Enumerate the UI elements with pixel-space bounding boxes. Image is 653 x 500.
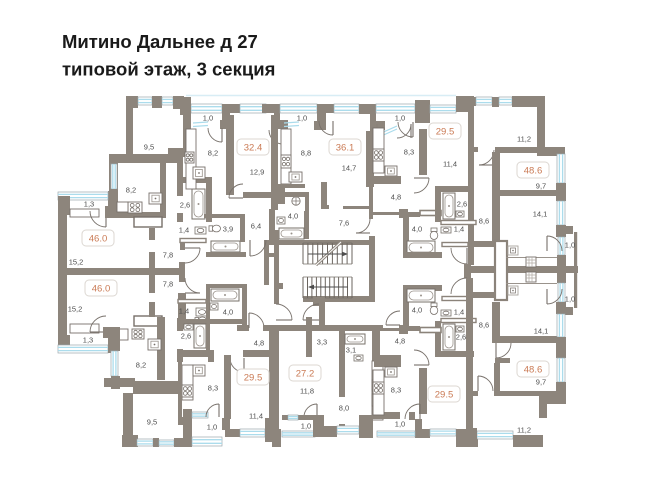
svg-text:1,4: 1,4 xyxy=(454,225,464,234)
svg-text:1,0: 1,0 xyxy=(203,114,213,123)
svg-text:1,0: 1,0 xyxy=(301,422,311,431)
svg-text:1,4: 1,4 xyxy=(454,308,464,317)
svg-text:1,0: 1,0 xyxy=(565,295,575,304)
svg-text:9,5: 9,5 xyxy=(144,143,154,152)
svg-text:8,3: 8,3 xyxy=(391,386,401,395)
svg-text:11,4: 11,4 xyxy=(443,160,457,169)
svg-text:8,2: 8,2 xyxy=(208,149,218,158)
svg-text:1,4: 1,4 xyxy=(179,226,189,235)
svg-text:14,7: 14,7 xyxy=(342,164,357,173)
svg-text:8,2: 8,2 xyxy=(136,361,146,370)
svg-text:4,0: 4,0 xyxy=(223,308,233,317)
svg-text:36.1: 36.1 xyxy=(336,143,355,154)
svg-text:46.0: 46.0 xyxy=(89,234,108,245)
svg-text:11,8: 11,8 xyxy=(300,387,314,396)
svg-text:4,8: 4,8 xyxy=(391,193,401,202)
svg-text:11,4: 11,4 xyxy=(249,412,263,421)
svg-text:4,0: 4,0 xyxy=(288,212,298,221)
svg-text:1,3: 1,3 xyxy=(83,336,93,345)
svg-text:15,2: 15,2 xyxy=(68,305,83,314)
svg-text:3,1: 3,1 xyxy=(346,346,356,355)
svg-text:48.6: 48.6 xyxy=(524,365,543,376)
svg-text:1,0: 1,0 xyxy=(565,241,575,250)
svg-text:29.5: 29.5 xyxy=(435,390,454,401)
svg-text:3,9: 3,9 xyxy=(223,225,233,234)
svg-text:типовой этаж, 3 секция: типовой этаж, 3 секция xyxy=(62,59,275,80)
svg-text:15,2: 15,2 xyxy=(69,258,84,267)
svg-text:8,0: 8,0 xyxy=(339,404,349,413)
svg-text:8,2: 8,2 xyxy=(126,186,136,195)
svg-text:6,4: 6,4 xyxy=(251,222,261,231)
svg-text:2,6: 2,6 xyxy=(181,332,191,341)
svg-text:1,3: 1,3 xyxy=(84,200,94,209)
svg-text:8,3: 8,3 xyxy=(208,384,218,393)
svg-text:14,1: 14,1 xyxy=(534,327,549,336)
svg-text:12,9: 12,9 xyxy=(250,168,265,177)
svg-text:4,8: 4,8 xyxy=(254,339,264,348)
svg-text:27.2: 27.2 xyxy=(296,369,315,380)
svg-text:4,8: 4,8 xyxy=(395,337,405,346)
svg-text:29.5: 29.5 xyxy=(436,127,455,138)
svg-text:1,0: 1,0 xyxy=(395,114,405,123)
svg-text:11,2: 11,2 xyxy=(517,135,531,144)
svg-text:3,3: 3,3 xyxy=(317,338,327,347)
svg-text:9,7: 9,7 xyxy=(536,182,546,191)
svg-text:1,4: 1,4 xyxy=(179,307,189,316)
svg-text:8,6: 8,6 xyxy=(479,217,489,226)
svg-text:32.4: 32.4 xyxy=(244,143,263,154)
svg-text:2,6: 2,6 xyxy=(456,333,466,342)
svg-text:46.0: 46.0 xyxy=(92,284,111,295)
svg-text:4,0: 4,0 xyxy=(412,306,422,315)
svg-text:7,8: 7,8 xyxy=(163,280,173,289)
svg-text:8,3: 8,3 xyxy=(404,148,414,157)
svg-text:2,6: 2,6 xyxy=(180,201,190,210)
svg-text:8,6: 8,6 xyxy=(479,321,489,330)
svg-text:4,0: 4,0 xyxy=(412,225,422,234)
svg-text:Митино Дальнее д 27: Митино Дальнее д 27 xyxy=(62,31,258,52)
svg-text:9,7: 9,7 xyxy=(536,378,546,387)
svg-text:11,2: 11,2 xyxy=(517,426,531,435)
svg-text:7,6: 7,6 xyxy=(339,219,349,228)
svg-text:8,8: 8,8 xyxy=(301,149,311,158)
svg-text:1,0: 1,0 xyxy=(297,114,307,123)
svg-text:48.6: 48.6 xyxy=(524,166,543,177)
svg-text:29.5: 29.5 xyxy=(244,373,263,384)
svg-text:9,5: 9,5 xyxy=(147,418,157,427)
svg-text:1,0: 1,0 xyxy=(207,423,217,432)
svg-text:2,6: 2,6 xyxy=(457,200,467,209)
svg-text:7,8: 7,8 xyxy=(163,251,173,260)
svg-text:14,1: 14,1 xyxy=(533,210,548,219)
svg-text:1,0: 1,0 xyxy=(395,420,405,429)
